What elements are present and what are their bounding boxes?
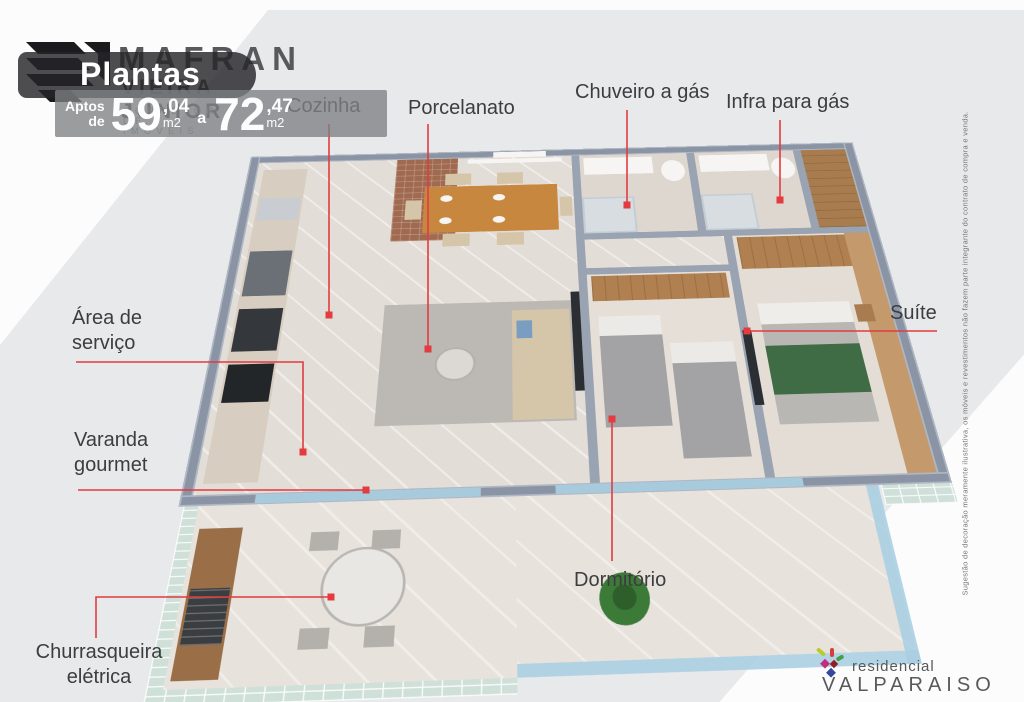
varanda-chair (309, 531, 340, 551)
dining-chair (560, 196, 573, 215)
label-suite: Suíte (890, 301, 937, 326)
dorm-bed-2-pillow (670, 341, 736, 363)
area-min-stack: ,04 m2 (163, 97, 189, 130)
residencial-text: residencial (852, 658, 935, 675)
area-max-decimal: ,47 (266, 97, 292, 116)
area-min-decimal: ,04 (163, 97, 189, 116)
disclaimer-text: Sugestão de decoração meramente ilustrat… (961, 176, 974, 596)
varanda-chair (371, 529, 401, 549)
dining-chair (445, 173, 471, 185)
dining-chair (497, 232, 524, 245)
kitchen-sink (256, 197, 301, 220)
floor-plan (253, 92, 873, 652)
area-prefix-de: de (65, 114, 105, 129)
valparaiso-text: VALPARAISO (822, 674, 996, 697)
dining-chair (497, 172, 523, 184)
cooktop (221, 363, 274, 403)
dorm-wardrobe (591, 273, 730, 302)
label-churrasqueira-eletrica: Churrasqueira elétrica (30, 640, 168, 690)
varanda-chair (297, 628, 330, 650)
floor-plan-tilted (136, 142, 1010, 702)
suite-bed-blanket (765, 343, 872, 394)
area-prefix: Aptos de (65, 99, 105, 129)
dining-table (422, 184, 559, 233)
bath1-shower (582, 196, 638, 233)
label-area-de-servico: Área de serviço (72, 306, 172, 356)
dining-chair (442, 233, 470, 246)
label-varanda-gourmet: Varanda gourmet (74, 428, 174, 478)
bath1-vanity (583, 157, 653, 175)
bath2-vanity (698, 154, 770, 172)
area-max-unit: m2 (266, 116, 292, 130)
area-min-value: 59 (111, 92, 162, 136)
area-range-bar: Aptos de 59 ,04 m2 a 72 ,47 m2 (55, 90, 387, 137)
flyer-canvas: { "colors":{ "accent_red":"#e23b40", "ba… (0, 0, 1024, 702)
sofa-pillow (516, 320, 532, 338)
area-max-value: 72 (214, 92, 265, 136)
dorm-bed-1-pillow (598, 315, 662, 336)
label-porcelanato: Porcelanato (408, 96, 515, 121)
fridge (242, 250, 293, 296)
label-dormitorio: Dormitório (574, 568, 666, 593)
area-max-stack: ,47 m2 (266, 97, 292, 130)
exterior-mint-band (881, 483, 958, 505)
suite-wardrobe (737, 234, 853, 268)
residencial-valparaiso-logo: residencial VALPARAISO (812, 648, 848, 687)
bath2-shower (701, 193, 760, 230)
label-infra-para-gas: Infra para gás (726, 90, 849, 115)
area-min-unit: m2 (163, 116, 189, 130)
area-separator: a (197, 110, 206, 128)
dining-chair (404, 200, 422, 220)
suite-bed-pillows (757, 301, 854, 324)
area-prefix-aptos: Aptos (65, 99, 105, 114)
oven (231, 308, 283, 352)
varanda-chair (363, 625, 395, 647)
label-chuveiro-a-gas: Chuveiro a gás (575, 80, 710, 105)
